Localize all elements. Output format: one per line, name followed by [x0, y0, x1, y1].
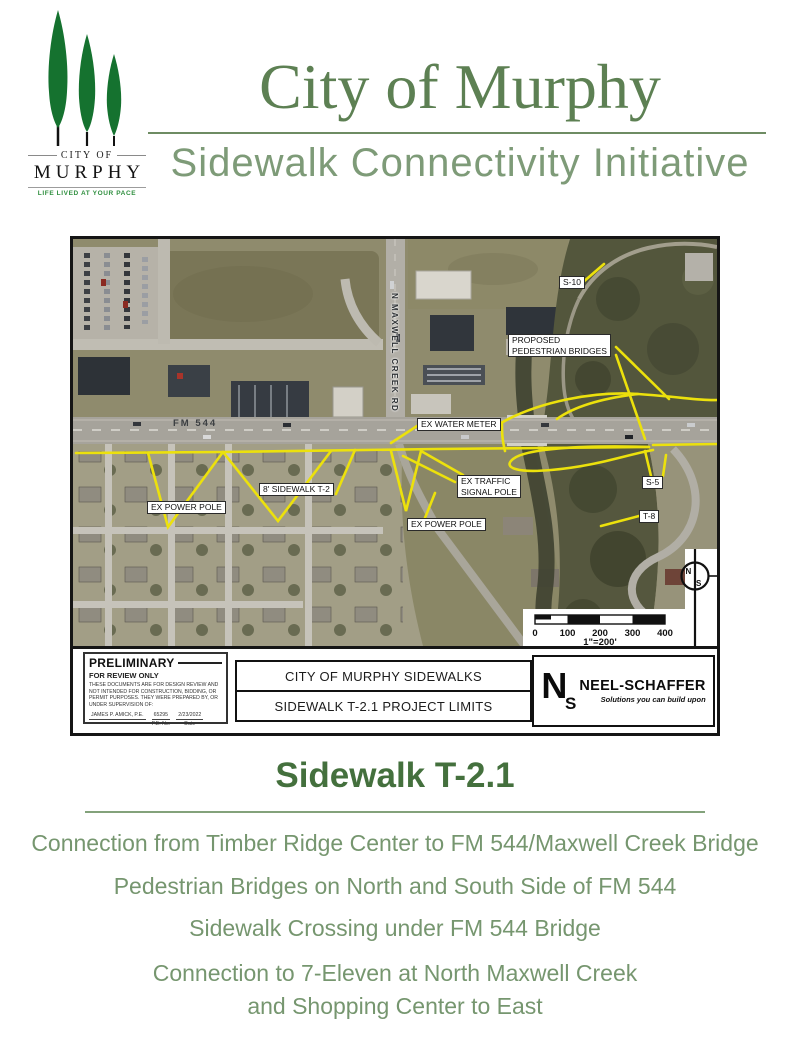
- neel-schaffer-monogram-icon: N S: [541, 671, 575, 711]
- description-line-4b: and Shopping Center to East: [0, 990, 790, 1023]
- preliminary-signature: JAMES P. AMICK, P.E. 65295 P.E. No. 2/23…: [89, 712, 222, 727]
- label-proposed-line2: PEDESTRIAN BRIDGES: [512, 346, 607, 357]
- description-line-4a: Connection to 7-Eleven at North Maxwell …: [0, 957, 790, 990]
- label-traffic-signal-line1: EX TRAFFIC: [461, 476, 517, 487]
- label-ex-water-meter: EX WATER METER: [417, 418, 501, 431]
- label-ex-power-pole-left: EX POWER POLE: [147, 501, 226, 514]
- logo-tagline: LIFE LIVED AT YOUR PACE: [28, 187, 146, 197]
- stamp-date: 2/23/2022: [176, 712, 203, 720]
- label-t8: T-8: [639, 510, 659, 523]
- preliminary-body: THESE DOCUMENTS ARE FOR DESIGN REVIEW AN…: [89, 682, 222, 708]
- city-logo: CITY OF MURPHY LIFE LIVED AT YOUR PACE: [28, 6, 146, 197]
- page-title: City of Murphy: [140, 44, 780, 130]
- stamp-date-label: Date: [176, 721, 203, 727]
- preliminary-stamp: PRELIMINARY FOR REVIEW ONLY THESE DOCUME…: [83, 652, 228, 724]
- monogram-s: S: [565, 694, 576, 714]
- description-line-1: Connection from Timber Ridge Center to F…: [0, 830, 790, 857]
- label-n-maxwell-creek-rd: N MAXWELL CREEK RD: [390, 293, 399, 412]
- description-line-3: Sidewalk Crossing under FM 544 Bridge: [0, 915, 790, 942]
- title-underline: [148, 132, 766, 134]
- label-proposed-line1: PROPOSED: [512, 335, 607, 346]
- aerial-photo: N S 0 100 200 300 400 1"=200': [73, 239, 717, 646]
- map-title-strip: PRELIMINARY FOR REVIEW ONLY THESE DOCUME…: [73, 646, 717, 733]
- logo-name: MURPHY: [28, 162, 146, 184]
- label-ex-power-pole-right: EX POWER POLE: [407, 518, 486, 531]
- firm-tagline: Solutions you can build upon: [601, 695, 706, 704]
- engineer-name: JAMES P. AMICK, P.E.: [89, 712, 146, 720]
- label-traffic-signal-line2: SIGNAL POLE: [461, 487, 517, 498]
- pe-number-label: P.E. No.: [152, 721, 171, 727]
- label-ex-traffic-signal-pole: EX TRAFFIC SIGNAL POLE: [457, 475, 521, 498]
- page: CITY OF MURPHY LIFE LIVED AT YOUR PACE C…: [0, 0, 790, 1053]
- north-letter-n: N: [686, 567, 692, 576]
- label-s5: S-5: [642, 476, 663, 489]
- title-block-line2: SIDEWALK T-2.1 PROJECT LIMITS: [237, 692, 530, 720]
- label-s10: S-10: [559, 276, 585, 289]
- description-line-4: Connection to 7-Eleven at North Maxwell …: [0, 957, 790, 1024]
- north-letter-s: S: [696, 579, 702, 588]
- cypress-trees-icon: [31, 6, 143, 148]
- section-underline: [85, 811, 705, 813]
- label-proposed-pedestrian-bridges: PROPOSED PEDESTRIAN BRIDGES: [508, 334, 611, 357]
- logo-city-of: CITY OF: [28, 150, 146, 161]
- scale-ratio: 1"=200': [583, 637, 616, 646]
- map-title-block: CITY OF MURPHY SIDEWALKS SIDEWALK T-2.1 …: [235, 660, 532, 722]
- section-heading: Sidewalk T-2.1: [0, 756, 790, 796]
- neel-schaffer-logo: N S NEEL-SCHAFFER Solutions you can buil…: [532, 655, 715, 727]
- firm-name: NEEL-SCHAFFER: [579, 678, 705, 694]
- description-line-2: Pedestrian Bridges on North and South Si…: [0, 873, 790, 900]
- project-map-panel: N S 0 100 200 300 400 1"=200': [70, 236, 720, 736]
- page-subtitle: Sidewalk Connectivity Initiative: [140, 137, 780, 189]
- scale-tick-100: 100: [560, 628, 576, 639]
- preliminary-subtitle: FOR REVIEW ONLY: [89, 671, 222, 680]
- pe-number: 65295: [152, 712, 171, 720]
- scale-tick-400: 400: [657, 628, 673, 639]
- label-fm-544: FM 544: [173, 418, 217, 429]
- monogram-n: N: [541, 665, 567, 707]
- scale-tick-0: 0: [532, 628, 537, 639]
- title-block-line1: CITY OF MURPHY SIDEWALKS: [237, 662, 530, 692]
- scale-tick-300: 300: [625, 628, 641, 639]
- preliminary-title: PRELIMINARY: [89, 656, 222, 670]
- label-8ft-sidewalk-t2: 8' SIDEWALK T-2: [259, 483, 334, 496]
